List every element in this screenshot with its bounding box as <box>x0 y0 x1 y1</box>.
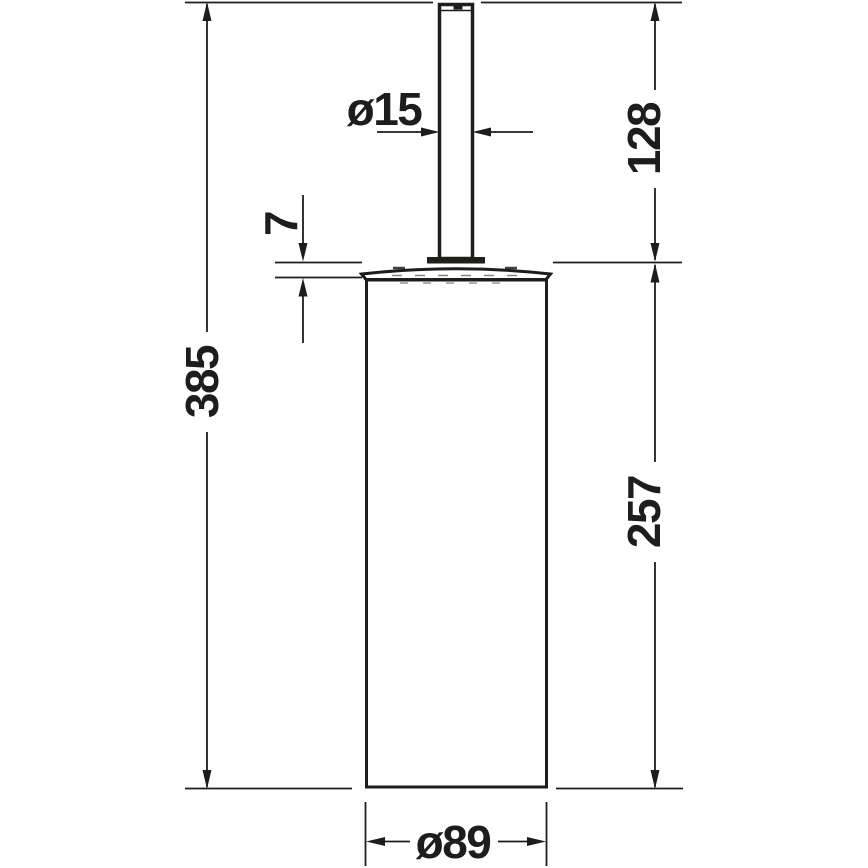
dim-label-handle-height: 128 <box>618 102 670 175</box>
arrowhead-left <box>366 837 385 846</box>
dim-body-diameter: ø89 <box>366 816 546 868</box>
dim-label-body-height: 257 <box>618 476 670 548</box>
technical-drawing: 385 7 ø15 128 257 ø89 <box>0 0 868 868</box>
arrowhead-down <box>203 770 212 789</box>
dim-total-height: 385 <box>176 2 228 789</box>
arrowhead-right <box>421 128 440 137</box>
arrowhead-up <box>299 278 308 297</box>
dim-body-height: 257 <box>618 264 670 790</box>
dim-label-body-diameter: ø89 <box>416 816 491 868</box>
dim-handle-height: 128 <box>618 2 670 262</box>
handle-cap-notch <box>454 5 463 10</box>
arrowhead-up <box>651 264 660 283</box>
dim-label-total-height: 385 <box>176 345 228 418</box>
container-body <box>367 280 547 787</box>
arrowhead-down <box>299 243 308 262</box>
dim-lid-height: 7 <box>255 195 308 343</box>
arrowhead-up <box>651 2 660 21</box>
arrowhead-down <box>651 770 660 789</box>
dim-label-lid-height: 7 <box>255 212 307 236</box>
lid <box>362 269 551 280</box>
arrowhead-right <box>527 837 546 846</box>
drawing-canvas: 385 7 ø15 128 257 ø89 <box>0 0 868 868</box>
dim-label-handle-diameter: ø15 <box>347 83 423 135</box>
handle-rod <box>440 5 473 259</box>
arrowhead-up <box>203 2 212 21</box>
arrowhead-down <box>651 243 660 262</box>
